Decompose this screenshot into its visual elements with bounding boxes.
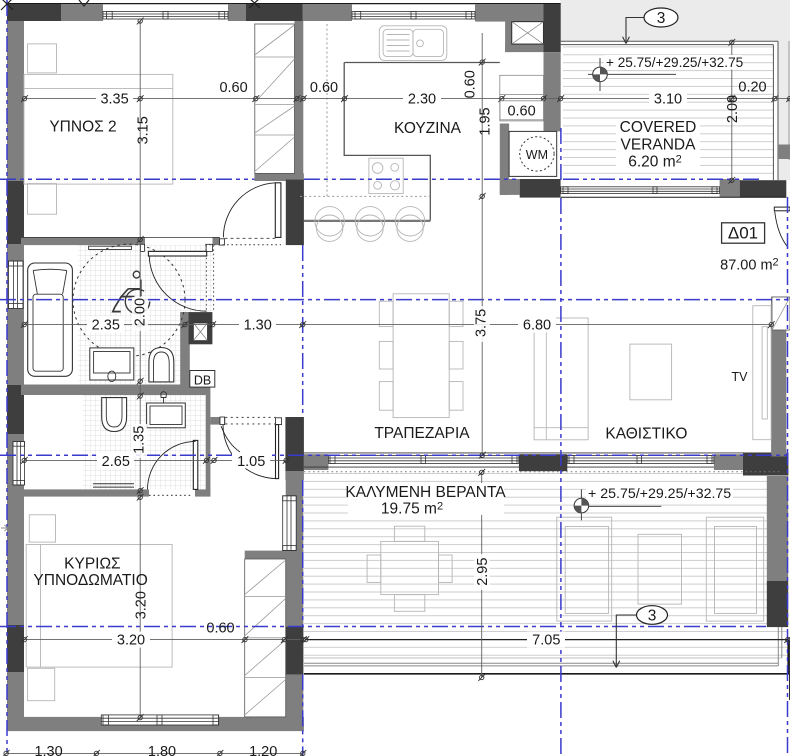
svg-text:1.30: 1.30 <box>244 318 272 334</box>
svg-text:+ 25.75/+29.25/+32.75: + 25.75/+29.25/+32.75 <box>606 55 743 70</box>
svg-text:Δ01: Δ01 <box>728 224 758 243</box>
svg-text:0.60: 0.60 <box>206 620 234 636</box>
svg-text:2.30: 2.30 <box>408 92 436 108</box>
svg-text:TV: TV <box>732 370 749 384</box>
svg-text:0.60: 0.60 <box>507 103 535 119</box>
svg-text:WM: WM <box>526 148 548 162</box>
svg-text:2.00: 2.00 <box>133 298 149 326</box>
svg-text:3: 3 <box>648 607 657 624</box>
svg-text:+ 25.75/+29.25/+32.75: + 25.75/+29.25/+32.75 <box>588 486 731 502</box>
svg-text:2.35: 2.35 <box>92 318 120 334</box>
svg-text:3.10: 3.10 <box>654 92 682 108</box>
svg-text:2.65: 2.65 <box>102 454 130 470</box>
svg-text:3.15: 3.15 <box>135 116 151 144</box>
svg-text:6.80: 6.80 <box>523 318 551 334</box>
svg-text:ΥΠΝΟΔΩΜΑΤΙΟ: ΥΠΝΟΔΩΜΑΤΙΟ <box>33 572 147 589</box>
svg-text:ΥΠΝΟΣ 2: ΥΠΝΟΣ 2 <box>49 119 116 136</box>
svg-text:0.20: 0.20 <box>738 79 766 95</box>
svg-text:19.75 m2: 19.75 m2 <box>381 501 443 518</box>
svg-text:ΚΑΘΙΣΤΙΚΟ: ΚΑΘΙΣΤΙΚΟ <box>605 425 687 442</box>
svg-text:1.35: 1.35 <box>131 426 147 454</box>
svg-text:ΚΑΛΥΜΕΝΗ ΒΕΡΑΝΤΑ: ΚΑΛΥΜΕΝΗ ΒΕΡΑΝΤΑ <box>345 484 506 501</box>
svg-text:1.30: 1.30 <box>34 744 62 756</box>
svg-text:3.20: 3.20 <box>133 591 149 619</box>
svg-text:3: 3 <box>657 10 666 27</box>
svg-text:6.20 m2: 6.20 m2 <box>628 154 682 171</box>
svg-text:2.95: 2.95 <box>475 558 491 586</box>
svg-text:2.00: 2.00 <box>725 95 741 123</box>
svg-text:DB: DB <box>194 374 211 388</box>
svg-text:7.05: 7.05 <box>532 633 560 649</box>
svg-text:ΚΟΥΖΙΝΑ: ΚΟΥΖΙΝΑ <box>394 120 462 137</box>
svg-text:3.35: 3.35 <box>100 92 128 108</box>
svg-text:1.95: 1.95 <box>477 107 493 135</box>
svg-text:ΚΥΡΙΩΣ: ΚΥΡΙΩΣ <box>64 555 121 572</box>
svg-text:87.00 m2: 87.00 m2 <box>720 256 779 273</box>
svg-text:COVERED: COVERED <box>620 119 697 136</box>
svg-text:1.80: 1.80 <box>148 744 176 756</box>
svg-text:VERANDA: VERANDA <box>621 136 697 153</box>
svg-text:1.05: 1.05 <box>237 454 265 470</box>
svg-text:ΤΡΑΠΕΖΑΡΙΑ: ΤΡΑΠΕΖΑΡΙΑ <box>374 425 470 442</box>
svg-text:1.20: 1.20 <box>249 744 277 756</box>
svg-text:3.75: 3.75 <box>474 309 490 337</box>
svg-text:0.60: 0.60 <box>310 80 338 96</box>
svg-text:0.60: 0.60 <box>462 70 478 98</box>
svg-text:0.60: 0.60 <box>219 80 247 96</box>
svg-text:3.20: 3.20 <box>117 633 145 649</box>
